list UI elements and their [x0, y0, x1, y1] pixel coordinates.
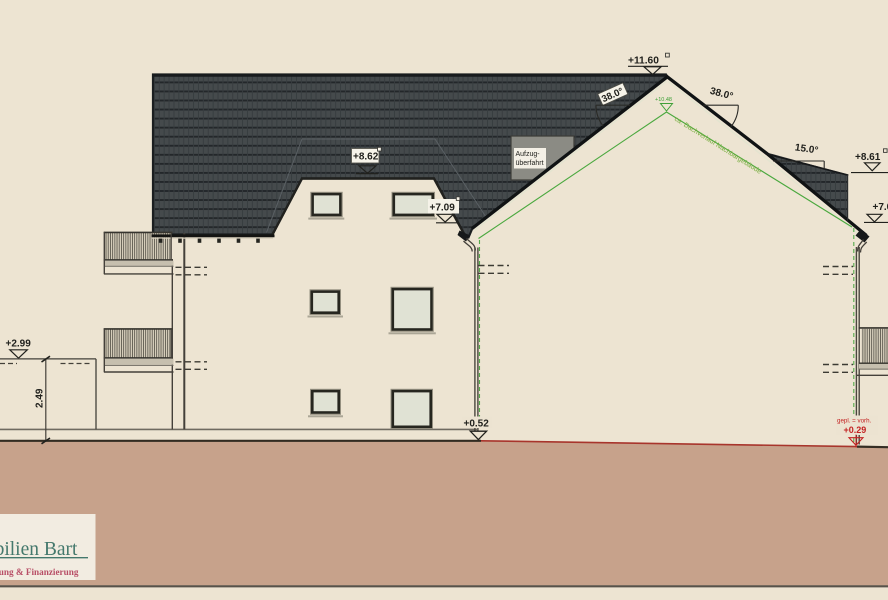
svg-text:überfahrt: überfahrt [516, 160, 544, 167]
svg-text:+0.29: +0.29 [844, 425, 867, 435]
svg-text:+7.09: +7.09 [873, 202, 888, 213]
svg-text:+11.60: +11.60 [628, 56, 659, 67]
svg-text:Aufzug-: Aufzug- [516, 151, 541, 158]
svg-text:2.49: 2.49 [35, 388, 46, 408]
svg-text:eratung & Finanzierung: eratung & Finanzierung [0, 567, 79, 577]
svg-text:+7.09: +7.09 [430, 203, 456, 214]
svg-text:Immobilien Bart: Immobilien Bart [0, 539, 78, 560]
svg-text:+0.52: +0.52 [464, 419, 490, 430]
svg-text:+2.99: +2.99 [6, 339, 32, 350]
svg-text:+8.62: +8.62 [353, 152, 379, 163]
svg-text:+10.48: +10.48 [655, 97, 672, 103]
svg-text:+8.61: +8.61 [855, 152, 881, 163]
svg-text:gepl. = vorh.: gepl. = vorh. [837, 418, 872, 425]
